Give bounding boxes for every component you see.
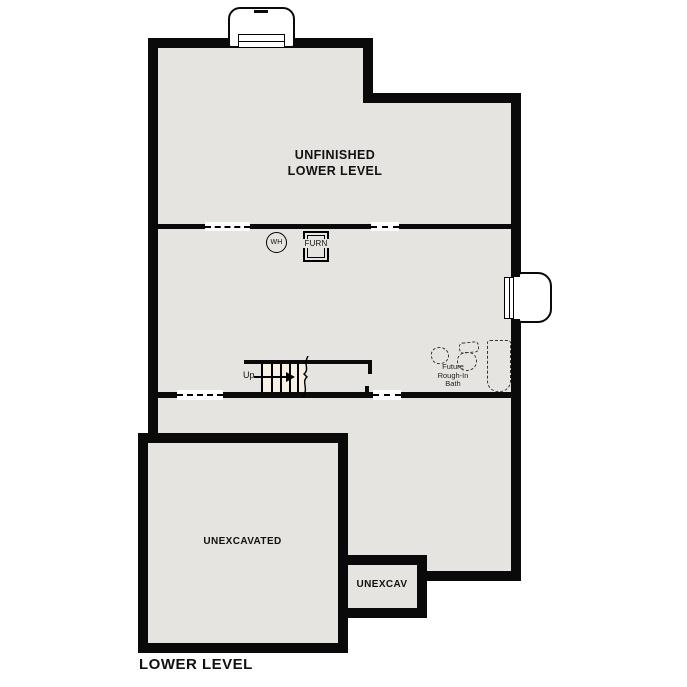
stair-direction-arrow <box>254 376 287 378</box>
window-top <box>238 34 285 48</box>
room-label-line1: UNFINISHED <box>240 147 430 163</box>
wall-opening-lower-left <box>177 390 223 400</box>
wall-top-right <box>363 93 521 103</box>
room-label-unexcav: UNEXCAV <box>345 579 419 590</box>
plan-title: LOWER LEVEL <box>139 656 253 673</box>
room-label-line2: LOWER LEVEL <box>240 163 430 179</box>
wall-unexcavated-right <box>338 433 348 653</box>
wall-stair-top-endcap <box>368 360 372 374</box>
floor-fill-upper-left <box>153 43 363 103</box>
bath-tub <box>487 340 511 392</box>
window-right <box>504 277 514 319</box>
wall-left <box>148 38 158 443</box>
stair-direction-arrowhead <box>286 372 295 382</box>
furnace-label: FURN <box>299 239 333 248</box>
water-heater-label: WH <box>270 239 282 246</box>
wall-opening-lower-right <box>373 390 401 400</box>
stair-break-line <box>298 356 314 398</box>
wall-right <box>511 93 521 581</box>
future-bath-label-line3: Bath <box>425 380 481 389</box>
room-label-unexcavated: UNEXCAVATED <box>165 536 320 547</box>
wall-bottom-right <box>417 571 521 581</box>
wall-unexcavated-top <box>138 433 348 443</box>
stair-up-label: Up <box>243 370 255 380</box>
stair-tread <box>271 364 273 392</box>
floor-plan: Up WH FURN UNFINISHED LOWER LEVEL Future… <box>0 0 687 687</box>
wall-opening-upper-left <box>205 222 250 231</box>
room-label-unfinished-lower-level: UNFINISHED LOWER LEVEL <box>240 147 430 179</box>
wall-stair-bottom-endcap <box>365 386 369 394</box>
wall-unexcav-top <box>338 555 427 565</box>
water-heater-symbol: WH <box>266 232 287 253</box>
stair-tread <box>261 364 263 392</box>
wall-unexcavated-left <box>138 433 148 653</box>
stair-tread <box>280 364 282 392</box>
wall-unexcav-bottom <box>338 608 427 618</box>
wall-opening-upper-right <box>371 222 399 231</box>
wall-unexcavated-bottom <box>138 643 348 653</box>
future-bath-label: Future Rough-In Bath <box>425 363 481 389</box>
bay-window-top-tick <box>254 10 268 13</box>
bay-window-right <box>518 272 552 323</box>
